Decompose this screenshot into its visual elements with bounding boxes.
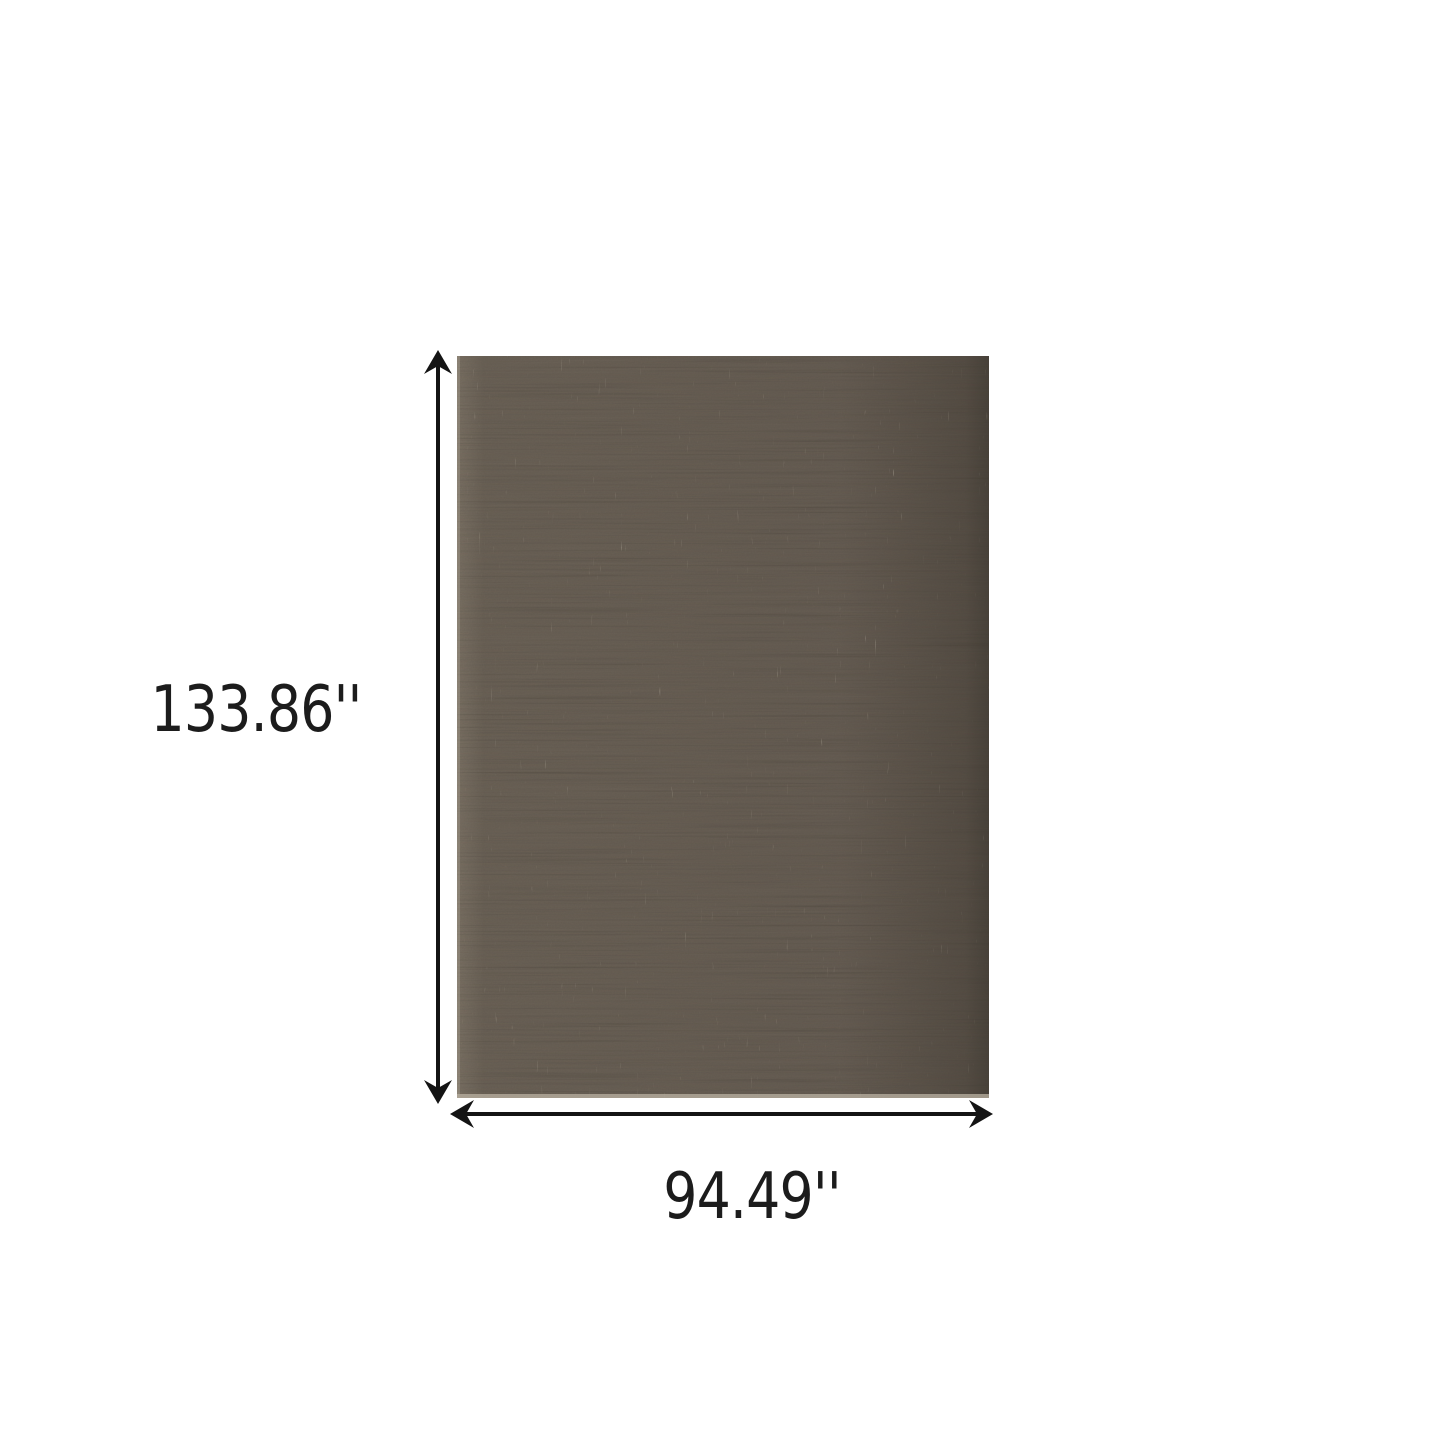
width-dimension-label: 94.49'' <box>592 1155 911 1239</box>
rug-image <box>457 356 989 1098</box>
width-dimension-arrow <box>450 1099 993 1129</box>
product-dimension-diagram: 133.86'' 94.49'' <box>0 0 1445 1445</box>
height-dimension-label: 133.86'' <box>96 668 415 752</box>
height-dimension-arrow <box>423 350 453 1104</box>
